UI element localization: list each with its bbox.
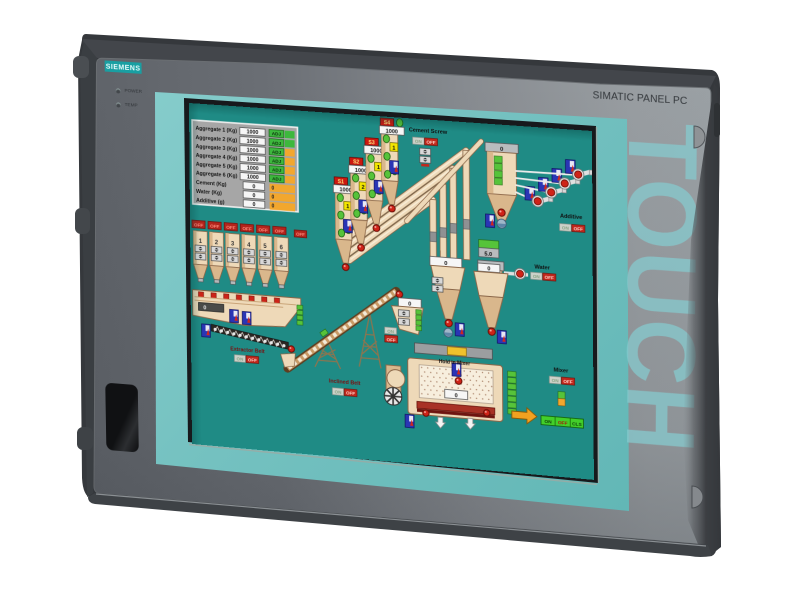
svg-text:Mixer: Mixer <box>554 367 570 374</box>
svg-text:0: 0 <box>272 194 275 200</box>
svg-text:ON: ON <box>562 225 569 231</box>
svg-text:0: 0 <box>271 185 274 191</box>
svg-text:ADJ: ADJ <box>272 131 282 137</box>
svg-text:OFF: OFF <box>248 357 257 363</box>
svg-text:1000: 1000 <box>247 138 259 145</box>
svg-text:1000: 1000 <box>247 174 259 181</box>
svg-text:1: 1 <box>346 204 349 210</box>
svg-text:1: 1 <box>377 165 380 171</box>
svg-text:1000: 1000 <box>386 128 398 135</box>
svg-text:OFF: OFF <box>387 337 396 343</box>
svg-text:ON: ON <box>237 356 244 362</box>
svg-text:ADJ: ADJ <box>272 167 282 173</box>
svg-text:1000: 1000 <box>247 129 259 136</box>
svg-text:0: 0 <box>203 305 206 311</box>
svg-text:2: 2 <box>362 185 365 191</box>
svg-text:OFF: OFF <box>563 379 573 385</box>
svg-text:ON: ON <box>552 378 559 384</box>
svg-text:OFF: OFF <box>426 139 435 145</box>
svg-text:ON: ON <box>415 139 422 145</box>
svg-text:1000: 1000 <box>247 147 259 154</box>
svg-text:1000: 1000 <box>370 148 382 155</box>
svg-text:1000: 1000 <box>355 168 367 175</box>
svg-text:OFF: OFF <box>346 390 355 396</box>
svg-text:0: 0 <box>252 193 255 199</box>
svg-text:0: 0 <box>253 202 256 208</box>
svg-text:1: 1 <box>392 145 395 151</box>
svg-text:OFF: OFF <box>275 228 285 234</box>
svg-text:ON: ON <box>335 389 342 395</box>
svg-text:OFF: OFF <box>574 226 584 232</box>
svg-text:5.0: 5.0 <box>484 251 492 258</box>
svg-text:OFF: OFF <box>210 223 219 229</box>
svg-text:OFF: OFF <box>545 275 555 281</box>
svg-text:ADJ: ADJ <box>272 158 282 164</box>
svg-text:OFF: OFF <box>296 232 305 238</box>
svg-text:OFF: OFF <box>558 420 568 426</box>
svg-text:ON: ON <box>387 328 394 334</box>
svg-text:1000: 1000 <box>339 187 351 194</box>
svg-text:CLS: CLS <box>572 421 582 427</box>
svg-text:ON: ON <box>533 274 540 280</box>
svg-text:ADJ: ADJ <box>272 140 282 146</box>
svg-text:OFF: OFF <box>242 226 252 232</box>
svg-text:1000: 1000 <box>247 165 259 172</box>
svg-text:ADJ: ADJ <box>272 176 282 182</box>
svg-text:ON: ON <box>544 419 552 425</box>
svg-text:0: 0 <box>272 204 275 210</box>
svg-text:OFF: OFF <box>259 227 269 233</box>
svg-text:0: 0 <box>455 393 458 399</box>
svg-text:Water: Water <box>534 264 550 271</box>
svg-text:ADJ: ADJ <box>272 149 282 155</box>
svg-text:0: 0 <box>487 266 490 272</box>
svg-text:OFF: OFF <box>226 225 235 231</box>
svg-text:0: 0 <box>252 184 255 190</box>
svg-text:1000: 1000 <box>247 156 259 163</box>
